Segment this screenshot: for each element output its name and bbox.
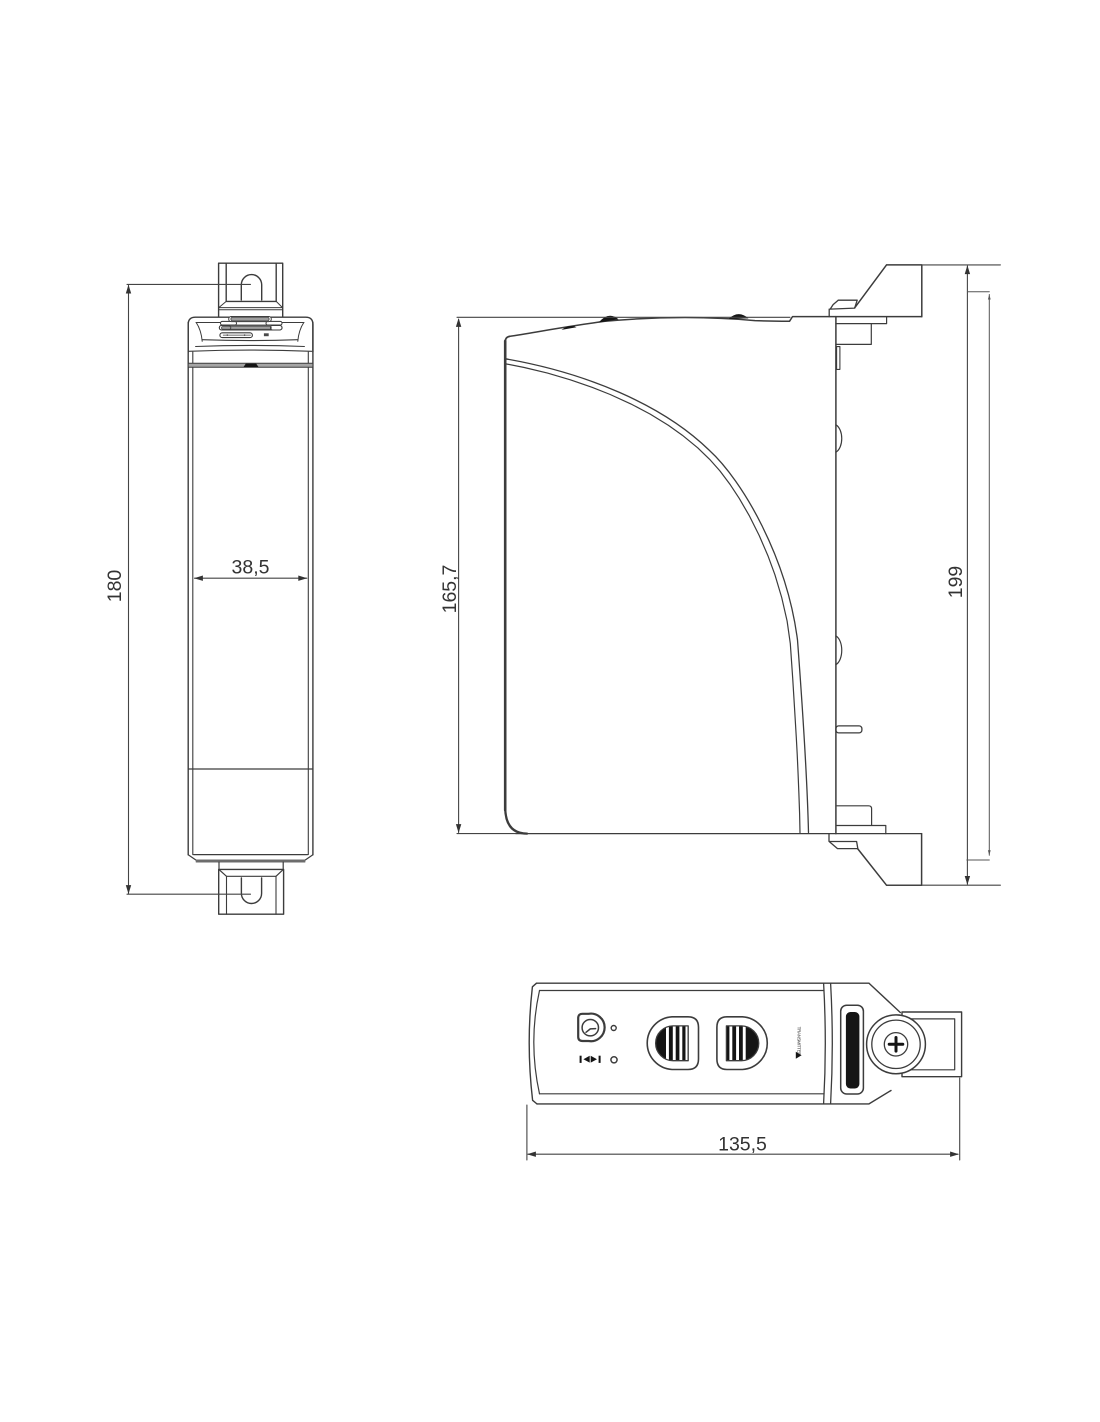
svg-text:38,5: 38,5 <box>232 557 270 579</box>
svg-text:TRANSMITTER: TRANSMITTER <box>797 1027 802 1057</box>
svg-text:180: 180 <box>104 570 126 603</box>
svg-text:199: 199 <box>945 566 967 599</box>
svg-text:165,7: 165,7 <box>439 565 461 614</box>
svg-text:135,5: 135,5 <box>718 1134 767 1156</box>
